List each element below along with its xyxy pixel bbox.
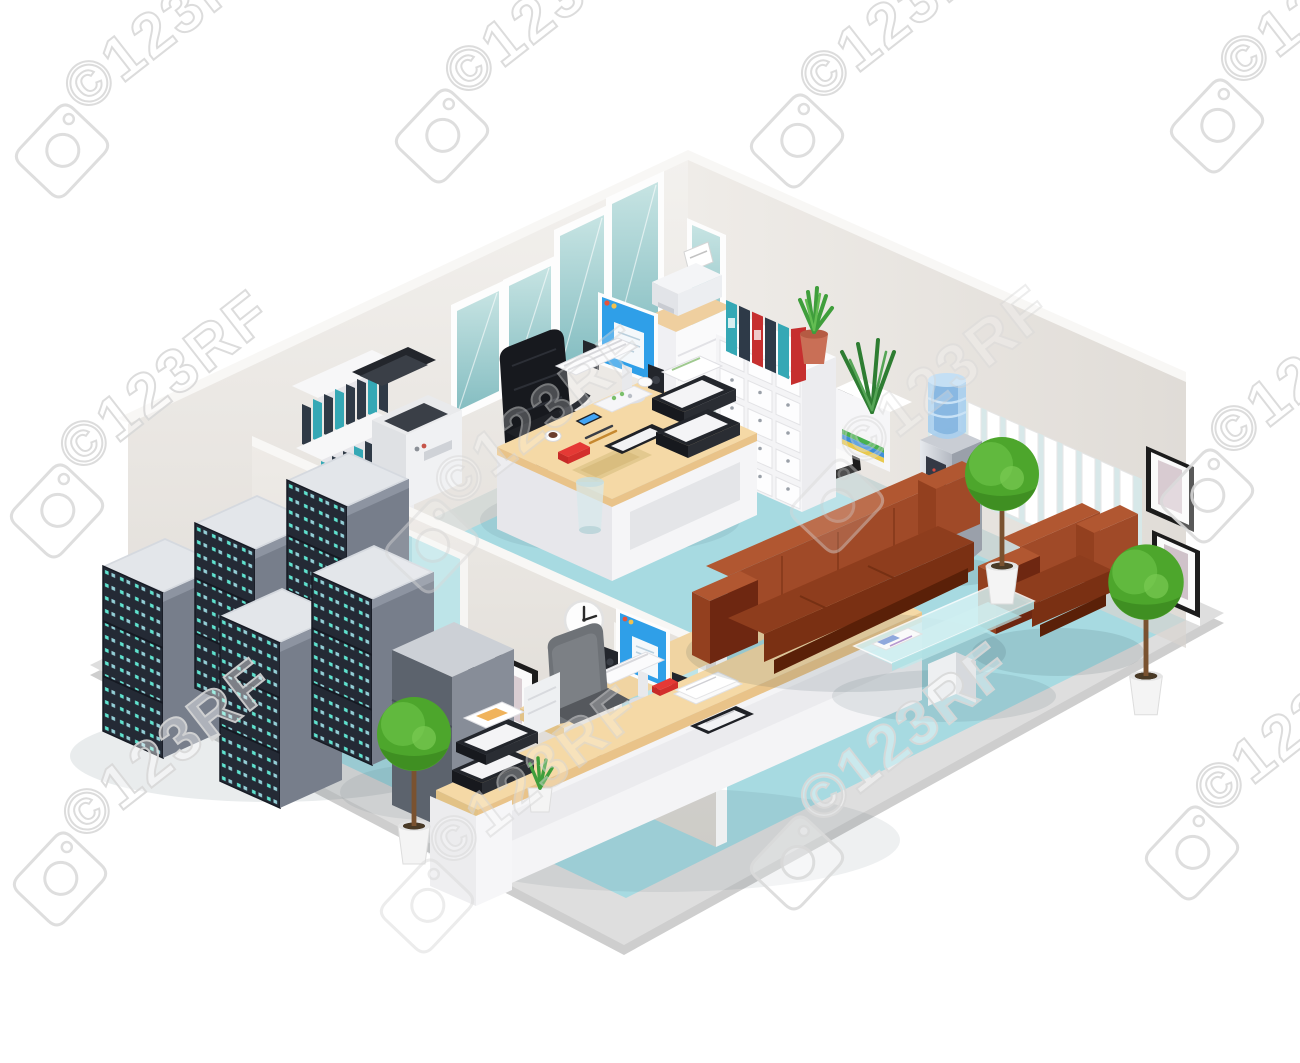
window-1 bbox=[451, 280, 505, 422]
isometric-office-illustration: ©123RF bbox=[0, 0, 1300, 1063]
stock-illustration-canvas: ©123RF bbox=[0, 0, 1300, 1063]
trash-bin bbox=[576, 477, 604, 534]
